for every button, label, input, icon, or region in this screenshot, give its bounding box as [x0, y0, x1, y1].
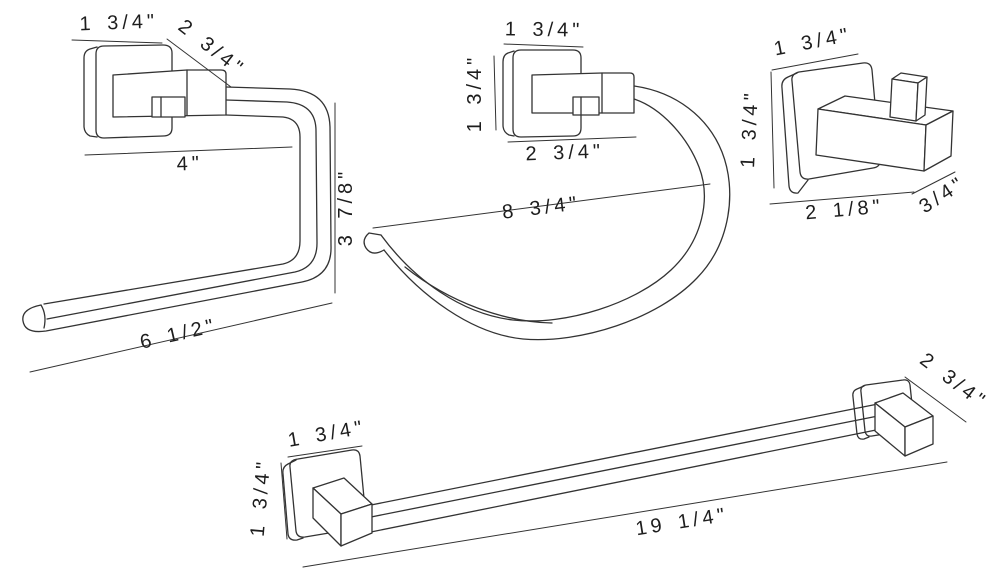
bar-dim-bar-length: 19 1/4" — [634, 504, 730, 540]
hook-dim-plate-width: 1 3/4" — [772, 24, 853, 61]
tp-bar-edge-line — [47, 100, 317, 319]
bar-rail-top-line — [366, 404, 878, 506]
tp-dim-line-plate-width — [72, 40, 162, 43]
towel-bar: 1 3/4" 1 3/4" 2 3/4" 19 1/4" — [247, 349, 990, 567]
robe-hook: 1 3/4" 1 3/4" 2 1/8" 3/4" — [737, 24, 970, 225]
ring-dim-plate-height: 1 3/4" — [464, 54, 486, 133]
ring-dim-ring-width: 8 3/4" — [501, 192, 582, 223]
hook-dim-line-plate-height — [771, 72, 774, 188]
bar-dim-line-bar-length — [303, 462, 947, 567]
dimension-drawing: 1 3/4" 2 3/4" 4" 3 7/8" 6 1/2" 1 3/4" 1 … — [0, 0, 990, 588]
tp-bar-end-face — [41, 305, 45, 328]
tp-dim-arm-top: 4" — [176, 153, 203, 176]
bar-dim-post-height: 1 3/4" — [247, 457, 276, 537]
ring-dim-plate-width: 1 3/4" — [505, 18, 584, 41]
bar-dim-post-projection: 2 3/4" — [916, 349, 990, 414]
ring-arm-knob — [573, 97, 599, 115]
tp-plate-side — [84, 47, 97, 137]
towel-ring: 1 3/4" 1 3/4" 2 3/4" 8 3/4" — [364, 18, 730, 339]
drawing-canvas: 1 3/4" 2 3/4" 4" 3 7/8" 6 1/2" 1 3/4" 1 … — [0, 0, 990, 588]
bar-rail-edge-line — [366, 416, 878, 518]
bar-dim-post-width: 1 3/4" — [286, 416, 367, 451]
toilet-paper-holder: 1 3/4" 2 3/4" 4" 3 7/8" 6 1/2" — [23, 11, 357, 372]
tp-dim-length: 6 1/2" — [138, 315, 220, 354]
hook-plate-side — [782, 73, 808, 193]
ring-dim-projection: 2 3/4" — [525, 141, 604, 166]
bar-dim-line-post-height — [281, 463, 287, 539]
hook-dim-plate-height: 1 3/4" — [737, 89, 763, 169]
tp-bar-inner-line — [44, 115, 300, 304]
hook-post-front-face — [890, 79, 918, 121]
bar-rail-bottom-line — [366, 430, 876, 533]
tp-arm-knob — [152, 97, 185, 117]
ring-dim-line-plate-width — [504, 44, 583, 47]
tp-dim-plate-width: 1 3/4" — [79, 11, 158, 36]
hook-post-right-face — [916, 77, 927, 121]
ring-dim-line-plate-height — [494, 56, 496, 130]
tp-dim-height: 3 7/8" — [335, 168, 357, 247]
